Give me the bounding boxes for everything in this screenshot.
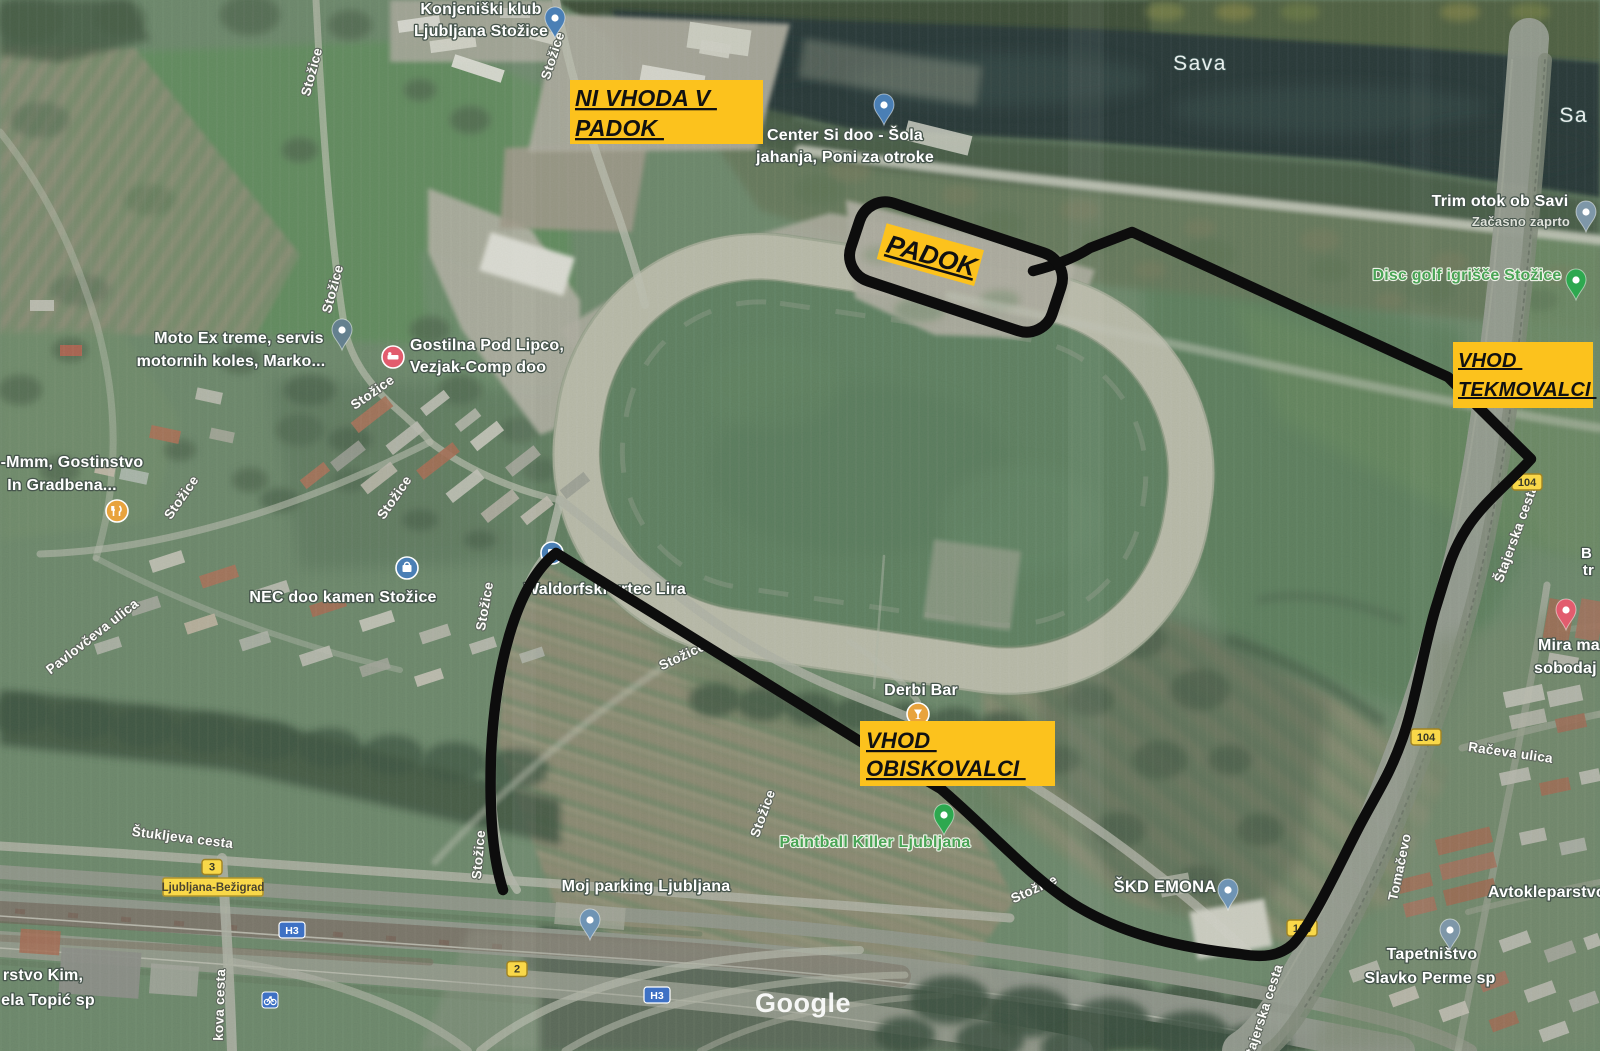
svg-text:In Gradbena...: In Gradbena... xyxy=(7,477,117,494)
svg-text:Ljubljana Stožice: Ljubljana Stožice xyxy=(414,23,548,40)
svg-text:Moj parking Ljubljana: Moj parking Ljubljana xyxy=(562,878,731,895)
svg-text:Slavko Perme sp: Slavko Perme sp xyxy=(1364,970,1495,987)
svg-text:sobodaj: sobodaj xyxy=(1534,660,1597,677)
svg-text:Mira ma: Mira ma xyxy=(1538,637,1600,654)
svg-text:Trim otok ob Savi: Trim otok ob Savi xyxy=(1432,193,1569,210)
svg-text:PADOK: PADOK xyxy=(575,115,664,141)
svg-text:Tapetništvo: Tapetništvo xyxy=(1387,946,1478,963)
svg-text:-Mmm, Gostinstvo: -Mmm, Gostinstvo xyxy=(1,454,144,471)
svg-text:104: 104 xyxy=(1518,477,1537,489)
svg-text:3: 3 xyxy=(209,862,215,874)
svg-text:NI VHODA V: NI VHODA V xyxy=(575,85,717,111)
svg-text:Avtokleparstvo: Avtokleparstvo xyxy=(1488,884,1600,901)
svg-text:Sa: Sa xyxy=(1559,104,1588,127)
svg-text:Moto Ex treme, servis: Moto Ex treme, servis xyxy=(154,330,324,347)
svg-text:104: 104 xyxy=(1417,732,1436,744)
svg-text:Začasno zaprto: Začasno zaprto xyxy=(1472,214,1570,229)
svg-text:Sava: Sava xyxy=(1173,52,1227,75)
svg-text:TEKMOVALCI: TEKMOVALCI xyxy=(1458,379,1597,401)
svg-text:Ljubljana-Bežigrad: Ljubljana-Bežigrad xyxy=(162,882,265,894)
svg-text:B: B xyxy=(1581,545,1592,562)
svg-text:2: 2 xyxy=(514,964,520,976)
svg-text:H3: H3 xyxy=(650,990,664,1002)
svg-text:jahanja, Poni za otroke: jahanja, Poni za otroke xyxy=(755,149,934,166)
svg-text:OBISKOVALCI: OBISKOVALCI xyxy=(866,756,1026,781)
svg-text:Gostilna Pod Lipco,: Gostilna Pod Lipco, xyxy=(410,337,564,354)
svg-text:Disc golf igrišče Stožice: Disc golf igrišče Stožice xyxy=(1372,267,1561,284)
svg-text:motornih koles, Marko...: motornih koles, Marko... xyxy=(137,353,326,370)
svg-text:Center Si doo - Šola: Center Si doo - Šola xyxy=(767,125,923,144)
svg-text:NEC doo kamen Stožice: NEC doo kamen Stožice xyxy=(249,589,436,606)
svg-text:Google: Google xyxy=(755,988,851,1018)
svg-text:VHOD: VHOD xyxy=(866,728,937,753)
svg-text:kova cesta: kova cesta xyxy=(211,968,229,1041)
svg-text:rstvo Kim,: rstvo Kim, xyxy=(3,967,83,984)
svg-text:tr: tr xyxy=(1583,562,1594,579)
svg-text:Vezjak-Comp doo: Vezjak-Comp doo xyxy=(410,359,546,376)
svg-text:Paintball Killer Ljubljana: Paintball Killer Ljubljana xyxy=(779,834,970,851)
svg-text:Derbi Bar: Derbi Bar xyxy=(884,682,958,699)
svg-text:H3: H3 xyxy=(285,925,299,937)
svg-text:VHOD: VHOD xyxy=(1458,350,1522,372)
svg-text:ela Topić sp: ela Topić sp xyxy=(1,992,95,1009)
svg-text:Konjeniški klub: Konjeniški klub xyxy=(420,1,541,18)
svg-text:ŠKD EMONA: ŠKD EMONA xyxy=(1114,877,1217,896)
